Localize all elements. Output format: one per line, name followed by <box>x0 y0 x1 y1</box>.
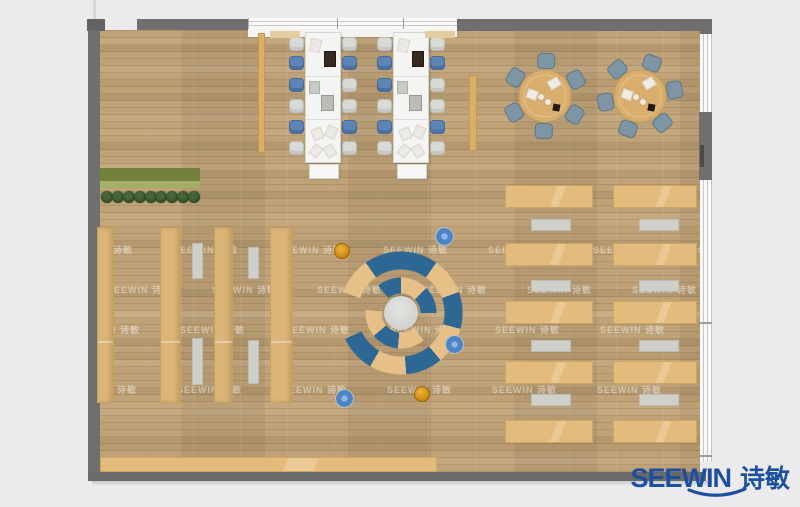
desk-item-dark <box>412 51 424 67</box>
desk-item-paper <box>412 124 427 140</box>
reading-desk <box>613 361 697 384</box>
office-chair <box>289 37 304 51</box>
desk-item-paper <box>397 38 410 53</box>
bench <box>192 243 203 279</box>
blue-stool <box>335 389 354 408</box>
top-wall-segment-left <box>137 19 248 30</box>
top-wall-segment-right <box>457 19 712 31</box>
office-chair <box>377 120 392 134</box>
orange-stool <box>334 243 350 259</box>
bench <box>639 340 679 352</box>
bench <box>248 247 259 279</box>
blue-stool <box>435 227 454 246</box>
desk-item-panel <box>309 81 320 94</box>
office-chair <box>430 37 445 51</box>
bench <box>531 219 571 231</box>
bookshelf-column <box>160 227 181 403</box>
office-chair <box>342 56 357 70</box>
desk-item-monitor <box>321 95 334 111</box>
floorplan-render: SEEWIN 诗敏SEEWIN 诗敏SEEWIN 诗敏SEEWIN 诗敏SEEW… <box>0 0 800 507</box>
window-mullion <box>700 322 712 324</box>
bench <box>192 338 203 385</box>
office-chair <box>430 56 445 70</box>
office-chair <box>377 78 392 92</box>
desk-item-dark <box>324 51 336 67</box>
workstation-end-table <box>309 164 339 179</box>
office-chair <box>342 99 357 113</box>
bench <box>639 219 679 231</box>
office-chair <box>430 141 445 155</box>
right-window-upper <box>700 34 712 112</box>
reading-desk <box>613 301 697 324</box>
wall-section-line <box>93 0 96 20</box>
shelf-divider <box>215 341 232 343</box>
reading-desk <box>505 243 593 266</box>
watermark-text: SEEWIN 诗敏 <box>180 323 245 336</box>
brand-logo-en: SEEWIN <box>630 465 731 492</box>
watermark-text: SEEWIN 诗敏 <box>600 323 665 336</box>
desk-item-paper <box>396 143 411 159</box>
workstation-end-table <box>397 164 427 179</box>
plant-icon <box>123 191 135 203</box>
desk-item-panel <box>397 81 408 94</box>
desk-item-paper <box>309 38 322 53</box>
bookshelf-column <box>97 227 114 403</box>
bench <box>531 340 571 352</box>
bench <box>248 340 259 384</box>
office-chair <box>289 120 304 134</box>
watermark-text: SEEWIN 诗敏 <box>495 323 560 336</box>
shelf-divider <box>161 341 180 343</box>
right-window-lower <box>700 180 712 462</box>
office-chair <box>377 56 392 70</box>
office-chair <box>430 78 445 92</box>
lounge-center-table <box>384 296 418 330</box>
desk-item-paper <box>323 143 338 158</box>
reading-desk <box>505 361 593 384</box>
bottom-long-desk <box>100 457 437 472</box>
bottom-wall <box>88 472 706 481</box>
blue-stool <box>445 335 464 354</box>
planter-box-light <box>100 181 200 188</box>
reading-desk <box>613 420 697 443</box>
bench <box>639 394 679 406</box>
reading-desk <box>505 185 593 208</box>
office-chair <box>430 120 445 134</box>
orange-stool <box>414 386 430 402</box>
workstation-desk-run <box>305 32 341 163</box>
planter-box <box>100 168 200 181</box>
bench <box>531 394 571 406</box>
reading-desk <box>613 243 697 266</box>
brand-logo: SEEWIN 诗敏 <box>630 465 790 492</box>
bench-strip <box>258 33 265 153</box>
window-mullion <box>700 455 712 457</box>
reading-desk <box>505 301 593 324</box>
plant-icon <box>134 191 146 203</box>
wall-shadow <box>92 481 708 486</box>
office-chair <box>377 99 392 113</box>
office-chair <box>377 37 392 51</box>
office-chair <box>289 78 304 92</box>
office-chair <box>289 141 304 155</box>
office-chair <box>342 141 357 155</box>
sill-accent <box>425 31 455 38</box>
shelf-divider <box>98 341 113 343</box>
logo-swoosh-icon <box>687 488 747 500</box>
office-chair <box>342 78 357 92</box>
workstation-desk-run <box>393 32 429 163</box>
plant-icon <box>188 191 200 203</box>
desk-item-paper <box>411 143 426 158</box>
office-chair <box>342 120 357 134</box>
desk-item-monitor <box>409 95 422 111</box>
desk-item-paper <box>308 143 323 159</box>
reading-desk <box>505 420 593 443</box>
desk-divider <box>394 119 428 120</box>
bench-strip <box>469 75 477 151</box>
desk-divider <box>306 119 340 120</box>
bench <box>531 280 571 292</box>
bookshelf-column <box>270 227 293 403</box>
office-chair <box>289 99 304 113</box>
office-chair <box>289 56 304 70</box>
desk-item-paper <box>310 127 324 142</box>
right-wall-top-corner <box>700 19 712 34</box>
bookshelf-column <box>214 227 233 403</box>
desk-divider <box>306 76 340 77</box>
shelf-divider <box>271 341 292 343</box>
reading-desk <box>613 185 697 208</box>
desk-item-paper <box>398 127 412 142</box>
brand-logo-cn: 诗敏 <box>740 467 790 492</box>
sill-accent <box>270 31 300 38</box>
door-handle-mark <box>700 145 704 167</box>
office-chair <box>342 37 357 51</box>
office-chair <box>430 99 445 113</box>
office-chair <box>377 141 392 155</box>
desk-divider <box>394 76 428 77</box>
desk-item-paper <box>324 124 339 140</box>
bench <box>639 280 679 292</box>
